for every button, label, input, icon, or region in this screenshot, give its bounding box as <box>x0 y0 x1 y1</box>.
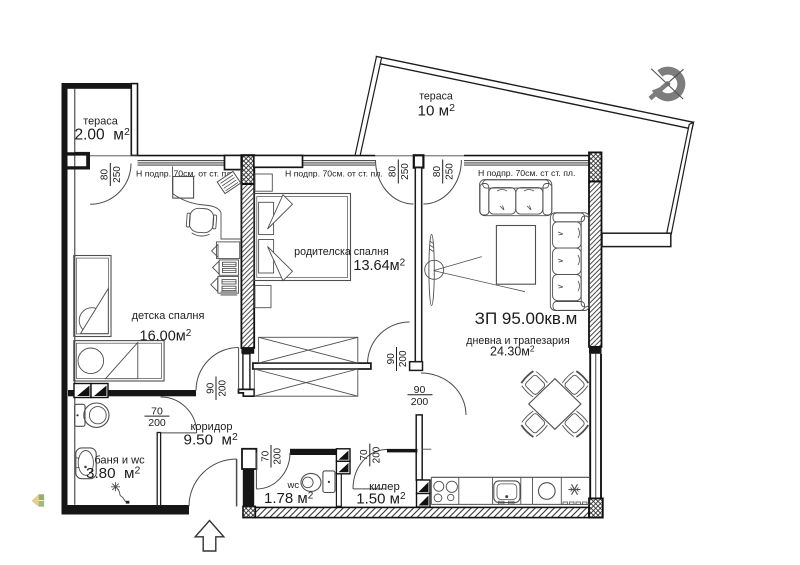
svg-text:90: 90 <box>205 382 216 394</box>
svg-text:200: 200 <box>398 350 409 367</box>
svg-text:70: 70 <box>151 405 163 417</box>
svg-text:2.00 м2: 2.00 м2 <box>75 126 130 144</box>
svg-text:24.30м2: 24.30м2 <box>490 344 535 359</box>
svg-text:9.50 м2: 9.50 м2 <box>184 431 238 449</box>
svg-text:Н подпр. 70см. ст ст. пл.: Н подпр. 70см. ст ст. пл. <box>478 168 575 178</box>
svg-text:80: 80 <box>100 169 111 181</box>
svg-text:70: 70 <box>260 450 271 462</box>
svg-text:250: 250 <box>444 163 455 180</box>
svg-text:80: 80 <box>432 166 443 178</box>
svg-text:16.00м2: 16.00м2 <box>140 328 192 345</box>
svg-text:200: 200 <box>411 396 429 408</box>
svg-text:250: 250 <box>400 163 411 180</box>
svg-text:70: 70 <box>359 449 370 461</box>
svg-text:90: 90 <box>414 384 426 396</box>
svg-text:200: 200 <box>218 380 229 397</box>
svg-text:200: 200 <box>371 446 382 463</box>
svg-text:Н подпр. 70см. от ст. пл.: Н подпр. 70см. от ст. пл. <box>136 169 234 179</box>
svg-text:детска спалня: детска спалня <box>132 310 205 322</box>
svg-text:тераса: тераса <box>419 91 453 103</box>
svg-text:Н подпр. 70см. от ст. пл.: Н подпр. 70см. от ст. пл. <box>285 169 383 179</box>
svg-text:200: 200 <box>148 417 166 429</box>
svg-text:200: 200 <box>273 448 284 465</box>
svg-text:3.80 м2: 3.80 м2 <box>86 465 140 483</box>
svg-text:1.50 м2: 1.50 м2 <box>356 490 406 507</box>
svg-text:13.64м2: 13.64м2 <box>353 257 405 274</box>
svg-text:80: 80 <box>388 166 399 178</box>
svg-text:250: 250 <box>112 166 123 183</box>
svg-text:1.78 м2: 1.78 м2 <box>264 490 314 507</box>
svg-text:ЗП 95.00кв.м: ЗП 95.00кв.м <box>475 309 578 328</box>
svg-text:родителска спалня: родителска спалня <box>294 246 389 258</box>
svg-text:90: 90 <box>386 353 397 365</box>
